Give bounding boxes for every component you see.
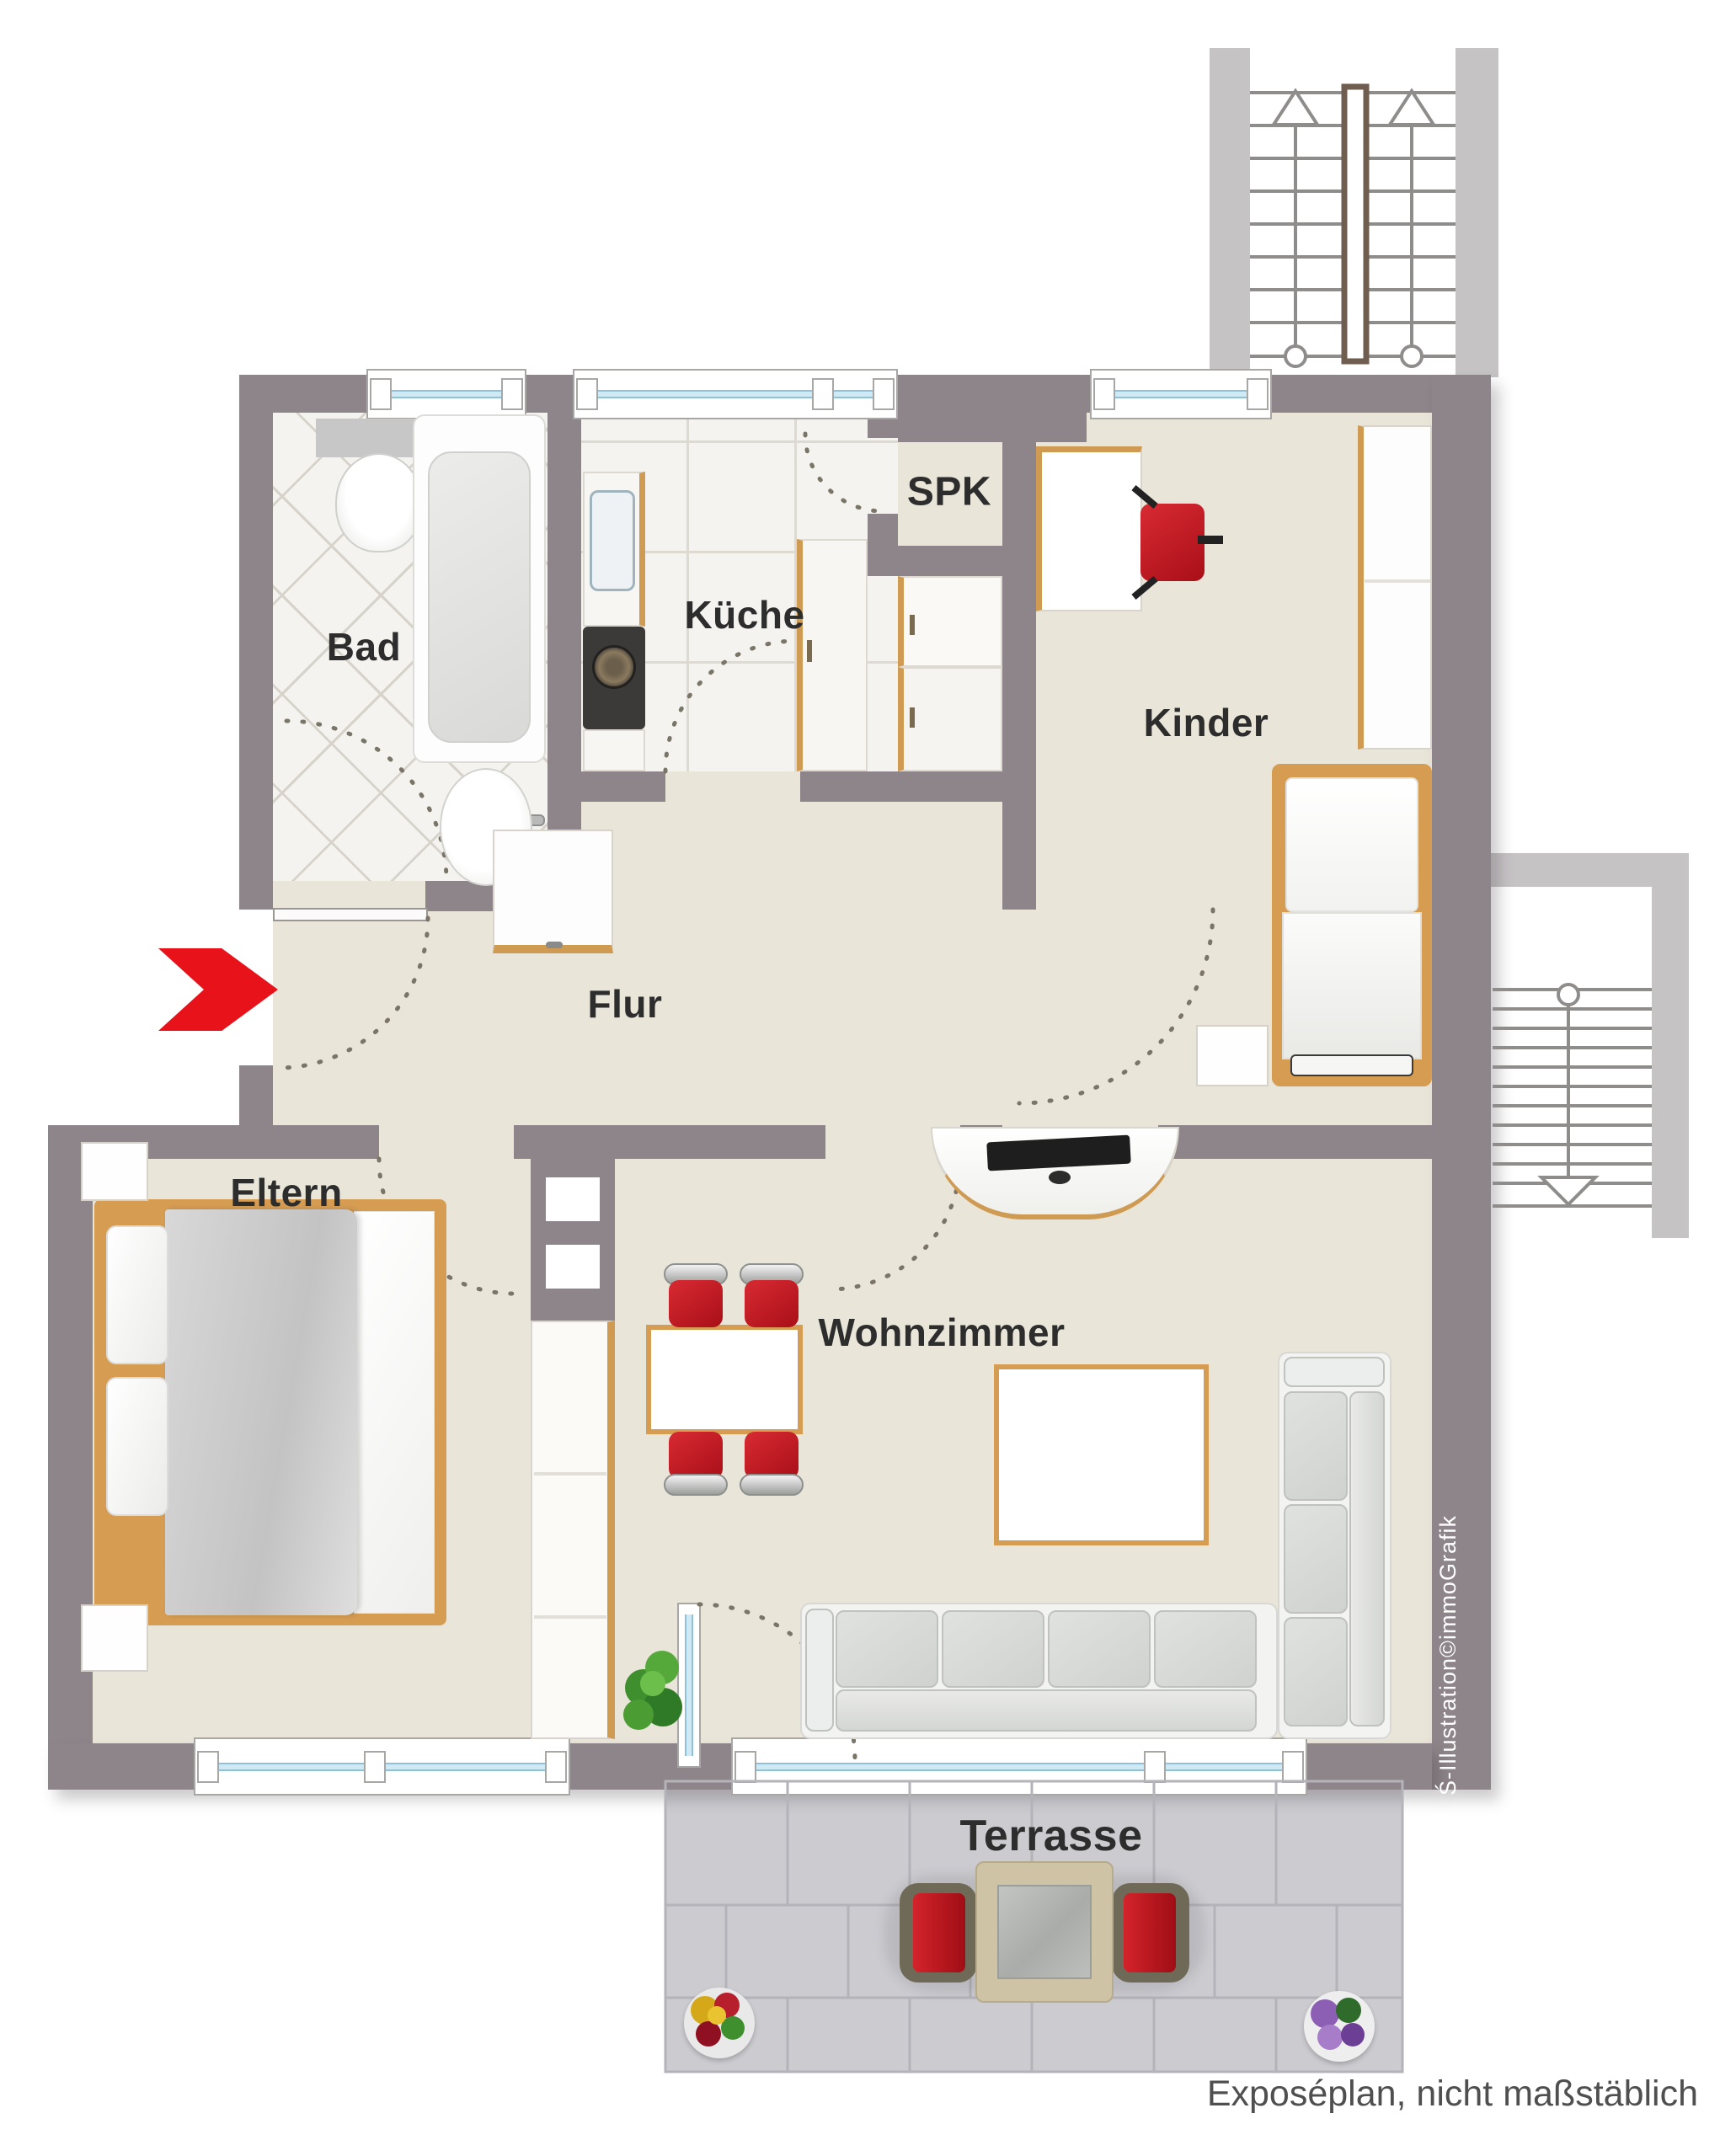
stair-top-steps (1250, 93, 1456, 356)
eltern-nightstand-top (81, 1142, 148, 1201)
stair-top-right-wall (1456, 48, 1498, 377)
floorplan: Bad Küche SPK Kinder Flur Eltern Wohnzim… (0, 0, 1736, 2156)
room-label-spk: SPK (907, 469, 991, 515)
wall-bad-kueche (548, 408, 581, 881)
eltern-bed-sheet (354, 1211, 435, 1614)
cabinet-handle (910, 707, 915, 728)
window-cap (197, 1751, 219, 1783)
cabinet-handle (807, 640, 812, 662)
sofa-seat (836, 1610, 938, 1688)
sofa-backrest (1349, 1391, 1385, 1726)
eltern-wardrobe-divider (534, 1472, 606, 1476)
eltern-bed-duvet (165, 1209, 357, 1615)
wall-kueche-bottom-left (581, 771, 665, 802)
bathtub-basin (428, 451, 531, 743)
kinder-bed-blanket (1282, 912, 1422, 1059)
sofa-seat (1284, 1391, 1348, 1501)
dining-chair (745, 1280, 799, 1327)
stair-right-steps (1493, 990, 1652, 1206)
window-cap (1282, 1751, 1304, 1783)
eltern-nightstand-bottom (81, 1604, 148, 1672)
dining-chair (669, 1432, 723, 1479)
sofa-seat (1048, 1610, 1151, 1688)
terrace-door-glass (685, 1614, 693, 1756)
room-label-kinder: Kinder (1144, 700, 1269, 745)
window-glass (745, 1763, 1294, 1771)
wall-kueche-spk-lower (868, 514, 898, 546)
dining-table (646, 1325, 803, 1434)
entrance-arrow-icon (158, 948, 278, 1031)
kinder-chair-arm (1198, 536, 1223, 544)
dining-chair-back (740, 1474, 804, 1496)
window-cap (873, 378, 895, 410)
dining-chair (745, 1432, 799, 1479)
window-cap (501, 378, 523, 410)
sofa-backrest (836, 1689, 1257, 1732)
window-kueche (573, 369, 898, 419)
wall-kinder-left (1002, 375, 1036, 910)
flowerpot-left (684, 1988, 755, 2058)
terrace-table-glass (997, 1885, 1092, 1979)
window-cap (734, 1751, 756, 1783)
window-bad (366, 369, 526, 419)
room-label-wohnzimmer: Wohnzimmer (819, 1310, 1066, 1355)
room-label-bad: Bad (327, 624, 401, 670)
entrance-door-leaf (273, 908, 428, 921)
terrace-chair-left-cushion (913, 1893, 965, 1972)
kinder-bed-foot (1290, 1054, 1413, 1076)
wall-eltern-left (48, 1125, 93, 1790)
hallway-dresser-knob (546, 942, 563, 948)
kinder-wardrobe-divider (1365, 579, 1430, 583)
room-label-flur: Flur (588, 981, 663, 1027)
stair-top-direction (1274, 91, 1434, 366)
stair-top-left-wall (1210, 48, 1250, 377)
washing-machine-door (592, 645, 636, 689)
wall-left-upper (239, 375, 273, 910)
room-label-eltern: Eltern (230, 1170, 342, 1215)
sofa-seat (1284, 1617, 1348, 1726)
window-cap (1093, 378, 1115, 410)
watermark-text: Ś-Illustration©immoGrafik (1435, 1311, 1461, 1796)
eltern-pillow-1 (106, 1225, 168, 1364)
wall-mid-2 (514, 1125, 825, 1159)
window-kinder (1090, 369, 1272, 419)
stair-right-direction (1541, 985, 1595, 1204)
kitchen-counter-lower (583, 729, 645, 771)
window-wohnzimmer (731, 1737, 1307, 1796)
flowerpot-right (1304, 1991, 1375, 2062)
window-glass (1103, 390, 1258, 398)
window-glass (380, 390, 513, 398)
room-label-terrasse: Terrasse (960, 1811, 1143, 1861)
kinder-desk-chair (1140, 504, 1205, 581)
window-cap (370, 378, 392, 410)
kinder-bed-pillow (1285, 777, 1418, 912)
sofa-armrest (805, 1609, 834, 1732)
window-eltern (194, 1737, 570, 1796)
coffee-table (994, 1364, 1209, 1545)
footer-disclaimer: Exposéplan, nicht maßstäblich (1053, 2073, 1698, 2115)
eltern-pillow-2 (106, 1377, 168, 1516)
room-label-kueche: Küche (684, 592, 804, 638)
wall-mid-4 (1158, 1125, 1432, 1159)
wall-spk-top-block (898, 375, 1087, 442)
cabinet-handle (910, 615, 915, 635)
stair-right-right-wall (1652, 853, 1689, 1238)
stair-top-divider (1344, 87, 1366, 361)
dining-chair-back (664, 1474, 728, 1496)
kitchen-sink-basin (590, 490, 635, 591)
sofa-seat (1284, 1504, 1348, 1614)
sofa-seat (1154, 1610, 1257, 1688)
kinder-wardrobe (1358, 425, 1432, 750)
sofa-seat (942, 1610, 1044, 1688)
hallway-dresser (493, 830, 613, 953)
window-cap (1247, 378, 1269, 410)
window-cap (576, 378, 598, 410)
window-mullion (812, 378, 834, 410)
dining-chair (669, 1280, 723, 1327)
kinder-nightstand (1196, 1025, 1269, 1086)
plant (620, 1644, 684, 1738)
eltern-wardrobe (531, 1321, 615, 1739)
window-mullion (364, 1751, 386, 1783)
window-cap (545, 1751, 567, 1783)
duct-niche-1 (546, 1177, 600, 1221)
window-glass (586, 390, 884, 398)
terrace-chair-right-cushion (1124, 1893, 1176, 1972)
toilet-bowl (335, 453, 423, 552)
wall-kueche-bottom-right (800, 771, 1036, 802)
tv-stand (1049, 1171, 1071, 1184)
duct-niche-2 (546, 1245, 600, 1289)
window-mullion (1144, 1751, 1166, 1783)
kinder-desk (1036, 446, 1142, 611)
eltern-wardrobe-divider (534, 1615, 606, 1619)
sofa-armrest (1284, 1357, 1385, 1387)
